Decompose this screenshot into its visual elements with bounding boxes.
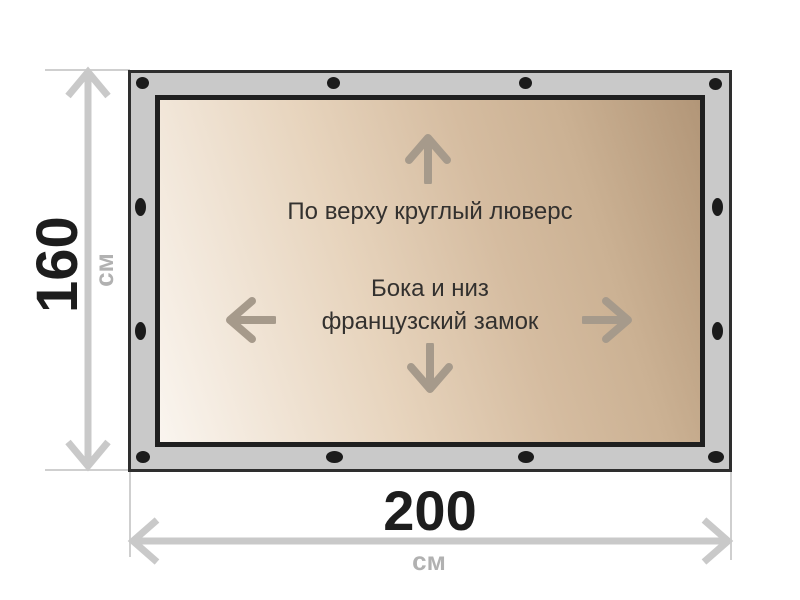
arrow-up-icon xyxy=(404,132,452,184)
grommet-dot-icon xyxy=(712,322,723,340)
grommet-dot-icon xyxy=(518,451,534,463)
grommet-dot-icon xyxy=(136,451,150,463)
grommet-dot-icon xyxy=(135,322,146,340)
grommet-dot-icon xyxy=(519,77,532,89)
grommet-dot-icon xyxy=(712,198,723,216)
sides-note-line2: французский замок xyxy=(180,307,680,337)
tarpaulin-diagram: 160 см 200 см По верху круглый люверс Бо… xyxy=(0,0,800,600)
grommet-dot-icon xyxy=(326,451,343,463)
grommet-dot-icon xyxy=(709,78,722,90)
height-unit: см xyxy=(91,240,117,300)
grommet-dot-icon xyxy=(135,198,146,216)
height-value: 160 xyxy=(28,223,88,313)
arrow-down-icon xyxy=(406,343,454,395)
sides-note-line1: Бока и низ xyxy=(180,274,680,304)
width-unit: см xyxy=(379,548,479,574)
grommet-dot-icon xyxy=(327,77,340,89)
grommet-dot-icon xyxy=(708,451,724,463)
width-value: 200 xyxy=(330,483,530,539)
top-edge-note: По верху круглый люверс xyxy=(180,197,680,227)
grommet-dot-icon xyxy=(136,77,149,89)
